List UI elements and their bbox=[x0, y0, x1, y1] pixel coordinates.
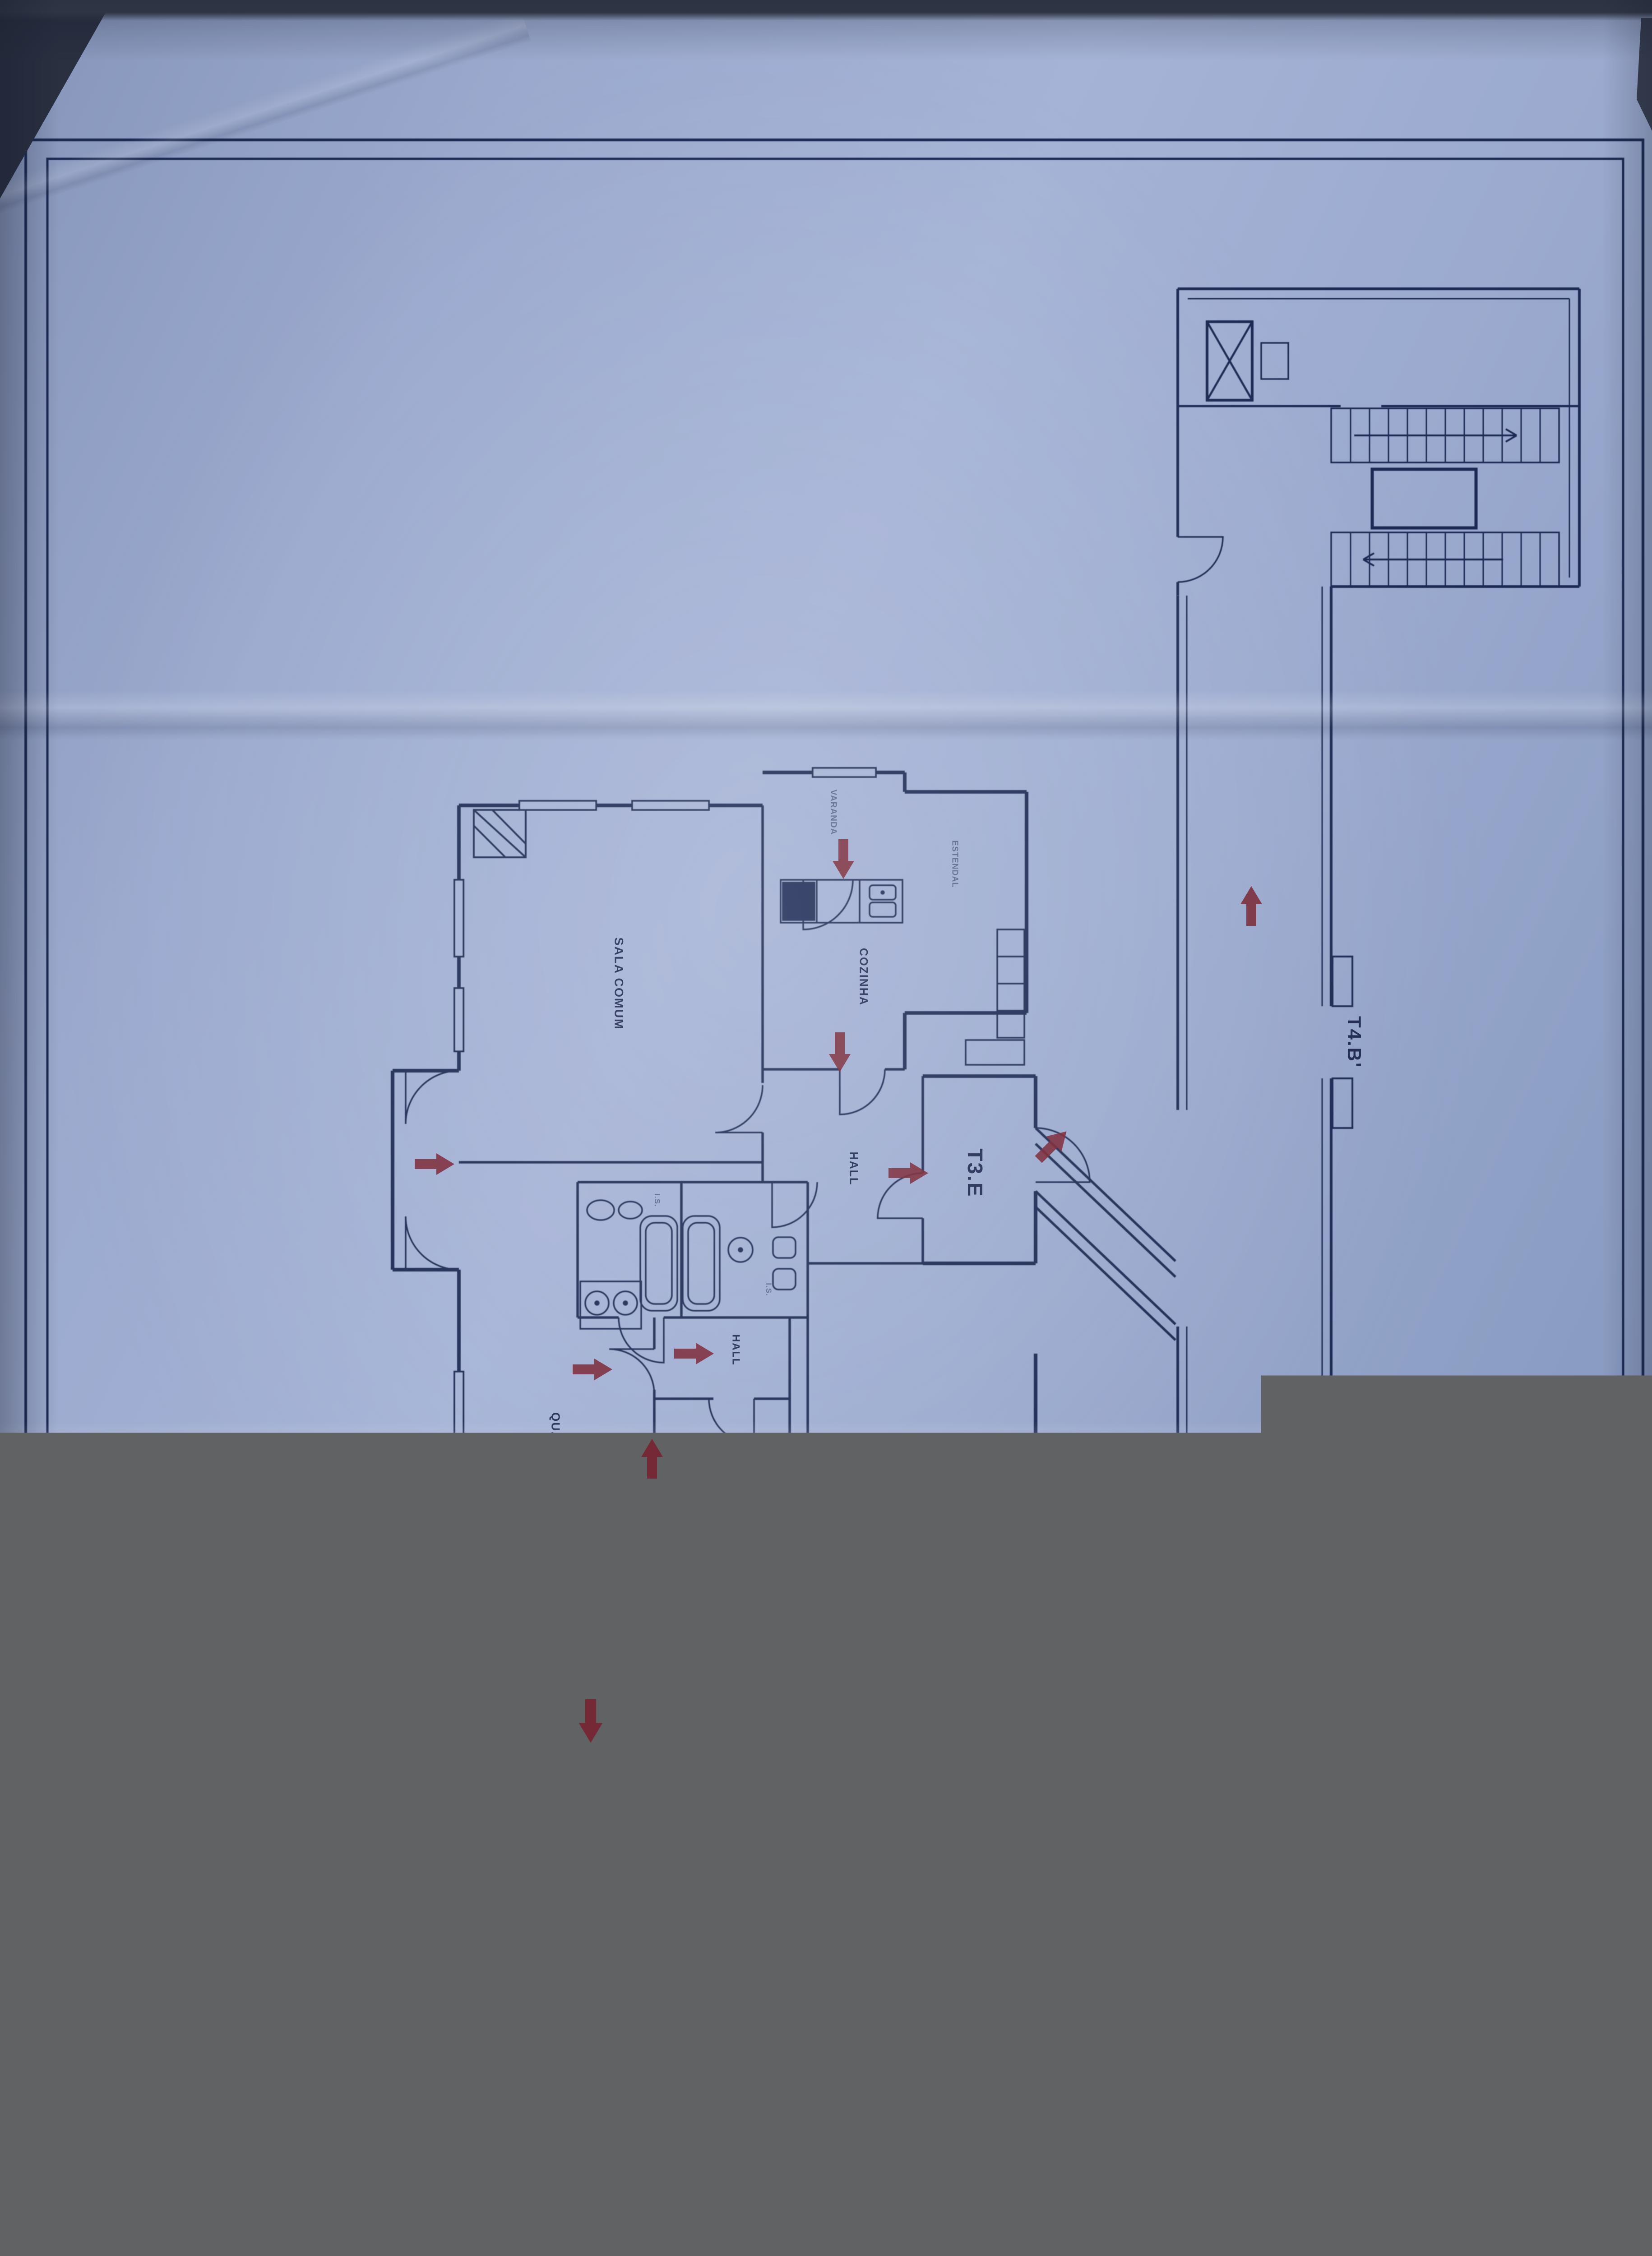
stairwell bbox=[1178, 289, 1579, 596]
title-block-local-label: LOCAL: bbox=[111, 2000, 123, 2037]
title-block-escala-label: ESCALA: bbox=[71, 2044, 82, 2084]
unit-label-t4b: T4.B' bbox=[1343, 1016, 1365, 1068]
requerente-signature bbox=[112, 1740, 143, 1842]
white-patch bbox=[1054, 1561, 1146, 1672]
room-label-quarto: QUARTO bbox=[696, 1478, 709, 1532]
legend-emergency-exit: SAÍDA DE EMERGÊNCIA EM CASO DE INCÊNDIO bbox=[583, 1747, 598, 2083]
svg-text:CÂMARA MUNICIPAL DE SINTRA: CÂMARA MUNICIPAL DE SINTRA bbox=[1263, 2037, 1379, 2256]
plan-svg: CÂMARA MUNICIPAL DE SINTRA bbox=[0, 0, 1652, 2256]
digitalizado-stamp: DIGITALIZADO bbox=[1555, 2087, 1577, 2254]
room-label-cozinha: COZINHA bbox=[857, 948, 870, 1006]
title-block-lote: Lote EA1b bbox=[111, 2202, 125, 2256]
drawing-sheet: CÂMARA MUNICIPAL DE SINTRA bbox=[0, 0, 1652, 2256]
title-block-local-value: Quinta da Beloura II bbox=[111, 2040, 125, 2155]
title-block-requerente: REQUERENTE bbox=[208, 1736, 221, 1812]
seal-ring-text: CÂMARA MUNICIPAL DE SINTRA bbox=[1263, 2037, 1379, 2256]
unit-label-t4c: T4.C' bbox=[1261, 1706, 1282, 1758]
room-label-sala: SALA COMUM bbox=[612, 938, 626, 1030]
room-label-varanda: VARANDA bbox=[828, 790, 838, 835]
room-label-is1: I.S. bbox=[652, 1193, 662, 1207]
circled-number: 21 bbox=[173, 2225, 196, 2250]
room-label-hall1: HALL bbox=[847, 1152, 860, 1186]
room-label-is2: I.S. bbox=[764, 1283, 773, 1296]
process-number-part1: 08 bbox=[137, 2070, 162, 2097]
signature-scribble bbox=[1425, 1962, 1540, 2091]
unit-label-t3e: T3.E bbox=[963, 1148, 987, 1197]
process-number-part2: 4483 bbox=[137, 2134, 164, 2188]
room-label-quarto-suite1: QUARTO SUITE bbox=[549, 1412, 563, 1512]
page-frame bbox=[26, 140, 1643, 2256]
apartment-walls bbox=[393, 768, 1117, 1762]
room-label-hall2: HALL bbox=[730, 1334, 742, 1365]
scanned-document-photo: CÂMARA MUNICIPAL DE SINTRA bbox=[0, 0, 1652, 2256]
room-label-estendal: ESTENDAL bbox=[950, 840, 960, 888]
title-block-date: ABRIL 2008 bbox=[58, 1904, 73, 1979]
room-label-quarto-suite2: QUARTO SUITE bbox=[928, 1584, 942, 1683]
title-block-title: PLANTA SIMPLIFICADA DO ACESSO AO FOGO bbox=[206, 1947, 223, 2256]
title-block-escala-value: 1:100 bbox=[56, 2082, 70, 2114]
title-block-subtitle: Planta do piso 2 - Bloco 1 - T3 E bbox=[179, 2016, 194, 2222]
process-number-part3: 2001 bbox=[139, 2216, 166, 2256]
